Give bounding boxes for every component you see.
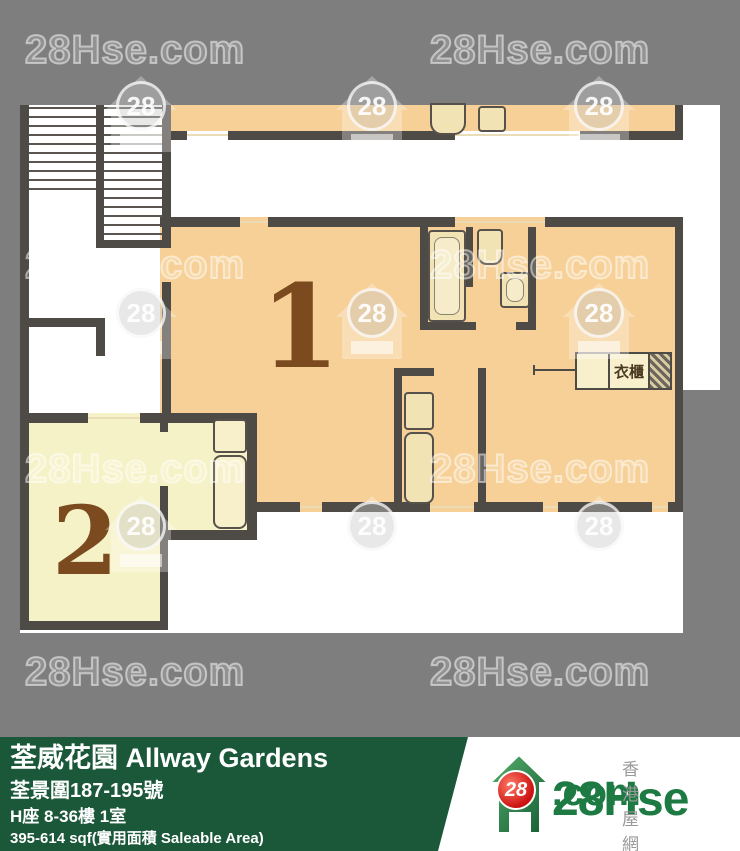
door-line: [455, 134, 580, 136]
wall-segment: [96, 105, 104, 247]
watermark-house-icon: 28: [336, 283, 408, 363]
watermark-house-icon: 28: [563, 76, 635, 156]
wall-segment: [668, 502, 683, 512]
stair-treads-left: [29, 107, 96, 197]
logo-tagline: 香港屋網: [622, 755, 641, 851]
leader-line: [535, 369, 575, 371]
watermark-house-icon: 28: [105, 76, 177, 156]
wall-segment: [675, 105, 683, 140]
watermark-text: 28Hse.com: [430, 243, 650, 288]
door-line: [88, 417, 140, 419]
watermark-text: 28Hse.com: [25, 28, 245, 73]
block-floor-flat: H座 8-36樓 1室: [10, 806, 126, 828]
wall-segment: [20, 105, 29, 630]
window-line: [430, 506, 474, 508]
wall-segment: [394, 368, 402, 512]
window-line: [455, 221, 545, 223]
toilet: [430, 103, 466, 135]
wall-segment: [160, 423, 168, 432]
window-line: [240, 221, 268, 223]
wall-segment: [516, 322, 536, 330]
wall-segment: [247, 413, 257, 540]
wall-segment: [394, 368, 434, 376]
watermark-house-icon: 28: [105, 496, 177, 576]
logo-badge-28: 28: [496, 770, 536, 810]
building-name: 荃威花園 Allway Gardens: [10, 741, 328, 775]
watermark-house-icon: 28: [563, 496, 635, 576]
watermark-house-icon: 28: [105, 283, 177, 363]
window-line: [652, 506, 668, 508]
wall-segment: [96, 318, 105, 356]
watermark-text: 28Hse.com: [25, 243, 245, 288]
wall-segment: [255, 502, 300, 512]
wall-segment: [168, 530, 255, 540]
watermark-house-icon: 28: [563, 283, 635, 363]
wall-segment: [268, 217, 455, 227]
street-address: 荃景圍187-195號: [10, 779, 163, 804]
wardrobe-cell-hatched: [648, 354, 670, 388]
saleable-area: 395-614 sqf(實用面積 Saleable Area): [10, 829, 264, 849]
wall-segment: [675, 217, 683, 512]
wall-segment: [545, 217, 675, 227]
window-line: [543, 506, 558, 508]
floorplan-page: 衣櫃 1 2 28Hse.com 28Hse.com 28Hse.com 28H…: [0, 0, 740, 851]
water-heater: [404, 392, 434, 430]
watermark-house-icon: 28: [336, 496, 408, 576]
door-line: [187, 134, 228, 136]
wall-segment: [20, 413, 88, 423]
watermark-text: 28Hse.com: [430, 650, 650, 695]
watermark-text: 28Hse.com: [430, 28, 650, 73]
sink: [478, 106, 506, 132]
watermark-text: 28Hse.com: [25, 447, 245, 492]
wall-segment: [420, 322, 476, 330]
watermark-text: 28Hse.com: [430, 447, 650, 492]
watermark-text: 28Hse.com: [25, 650, 245, 695]
wall-segment: [420, 227, 428, 330]
watermark-house-icon: 28: [336, 76, 408, 156]
unit1-label: 1: [255, 268, 345, 388]
window-line: [300, 506, 322, 508]
wall-segment: [20, 621, 168, 630]
nook-void: [168, 540, 255, 630]
wall-segment: [160, 217, 240, 227]
wall-segment: [20, 318, 105, 327]
